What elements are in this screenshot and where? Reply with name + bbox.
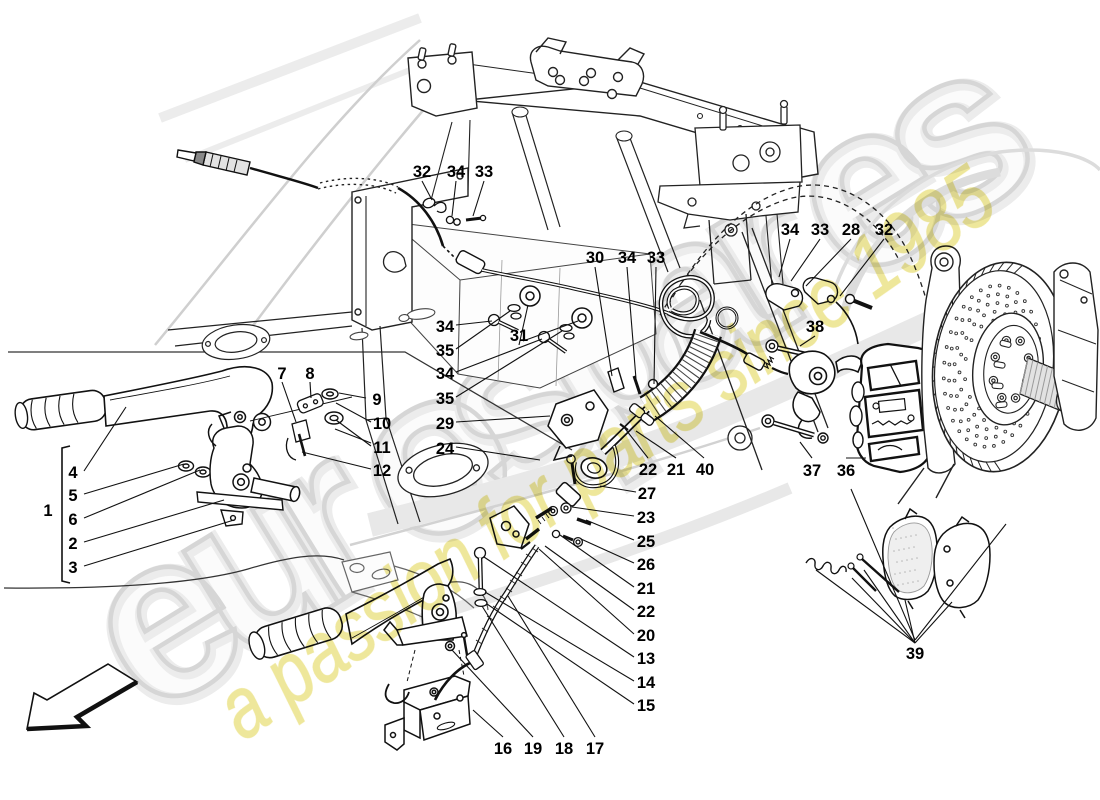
svg-text:22: 22 bbox=[637, 603, 655, 621]
svg-text:5: 5 bbox=[68, 487, 77, 505]
svg-text:33: 33 bbox=[475, 163, 493, 181]
svg-text:34: 34 bbox=[447, 163, 466, 181]
svg-text:27: 27 bbox=[638, 485, 656, 503]
svg-text:29: 29 bbox=[436, 415, 454, 433]
svg-text:23: 23 bbox=[637, 509, 655, 527]
svg-text:20: 20 bbox=[637, 627, 655, 645]
svg-text:21: 21 bbox=[637, 580, 655, 598]
svg-text:11: 11 bbox=[373, 439, 390, 457]
svg-text:4: 4 bbox=[68, 464, 78, 482]
svg-text:34: 34 bbox=[436, 365, 455, 383]
svg-text:34: 34 bbox=[618, 249, 637, 267]
svg-text:31: 31 bbox=[510, 327, 528, 345]
svg-text:3: 3 bbox=[68, 559, 77, 577]
svg-text:33: 33 bbox=[811, 221, 829, 239]
svg-text:26: 26 bbox=[637, 556, 655, 574]
svg-text:37: 37 bbox=[803, 462, 821, 480]
svg-text:34: 34 bbox=[436, 318, 455, 336]
svg-text:19: 19 bbox=[524, 740, 542, 758]
svg-text:15: 15 bbox=[637, 697, 655, 715]
svg-text:30: 30 bbox=[586, 249, 604, 267]
svg-text:35: 35 bbox=[436, 390, 454, 408]
svg-text:18: 18 bbox=[555, 740, 573, 758]
svg-text:2: 2 bbox=[68, 535, 77, 553]
svg-text:39: 39 bbox=[906, 645, 924, 663]
svg-text:34: 34 bbox=[781, 221, 800, 239]
svg-text:40: 40 bbox=[696, 461, 714, 479]
svg-text:33: 33 bbox=[647, 249, 665, 267]
svg-text:32: 32 bbox=[413, 163, 431, 181]
svg-text:12: 12 bbox=[373, 462, 391, 480]
svg-text:14: 14 bbox=[637, 674, 656, 692]
svg-text:16: 16 bbox=[494, 740, 512, 758]
svg-text:6: 6 bbox=[68, 511, 77, 529]
svg-text:7: 7 bbox=[277, 365, 286, 383]
svg-text:36: 36 bbox=[837, 462, 855, 480]
svg-text:13: 13 bbox=[637, 650, 655, 668]
svg-text:1: 1 bbox=[43, 502, 52, 520]
svg-text:9: 9 bbox=[372, 391, 381, 409]
svg-text:24: 24 bbox=[436, 440, 455, 458]
svg-text:35: 35 bbox=[436, 342, 454, 360]
svg-text:8: 8 bbox=[305, 365, 314, 383]
svg-text:25: 25 bbox=[637, 533, 655, 551]
svg-text:10: 10 bbox=[373, 415, 391, 433]
svg-text:17: 17 bbox=[586, 740, 604, 758]
